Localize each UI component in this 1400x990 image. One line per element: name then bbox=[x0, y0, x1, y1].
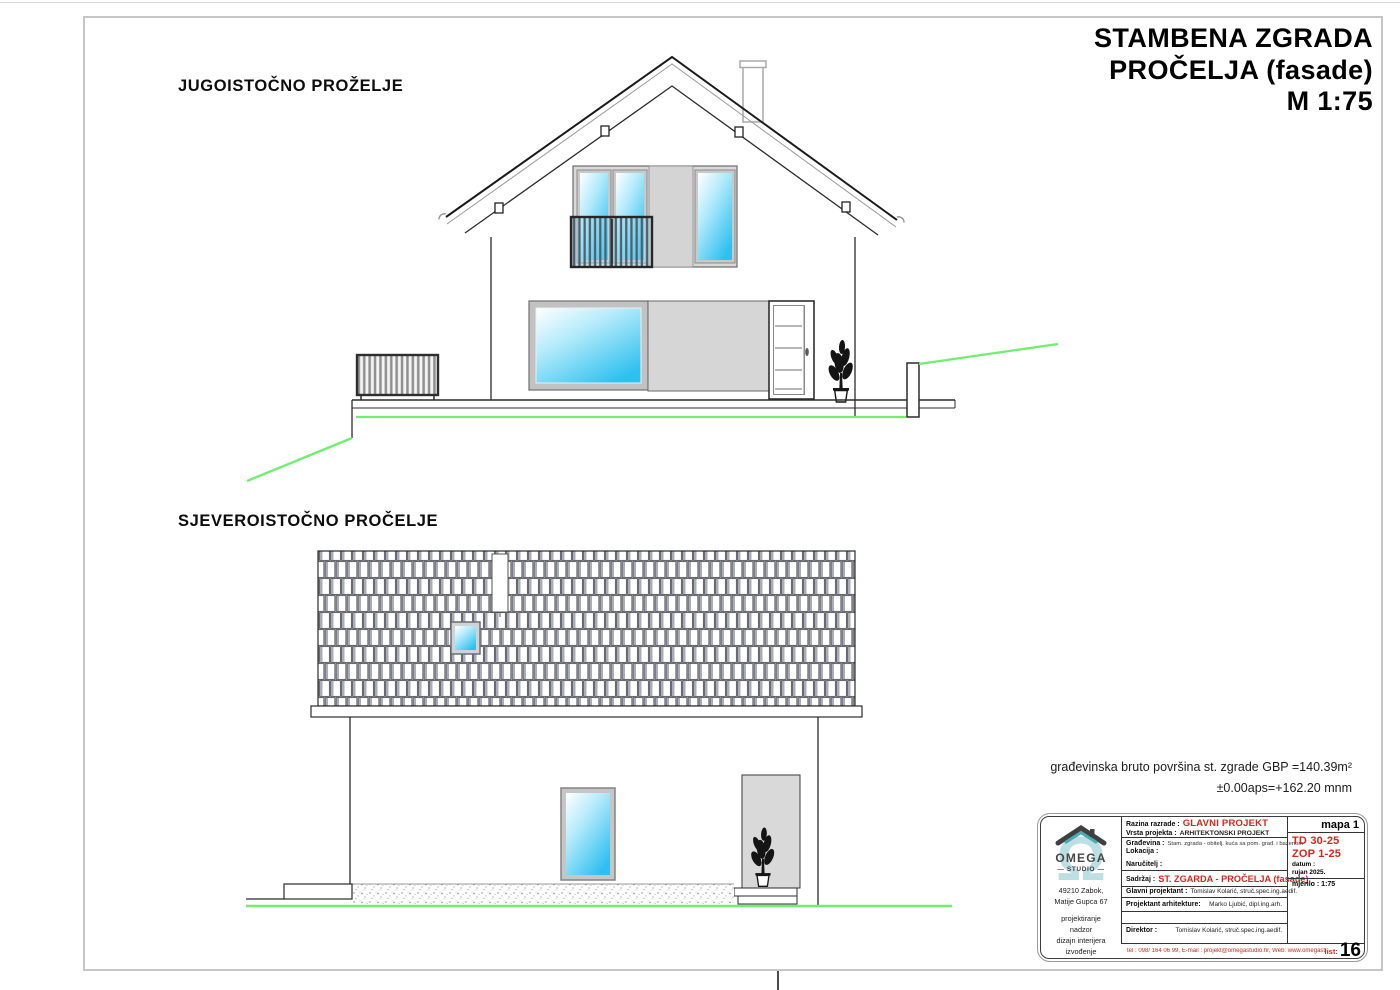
roof-shingles bbox=[318, 551, 855, 706]
sadrzaj-value: ST. ZGARDA - PROČELJA (fasade) bbox=[1158, 874, 1308, 884]
glavni-projektant-label: Glavni projektant : bbox=[1126, 888, 1187, 895]
upper-window-glass-right bbox=[698, 173, 732, 260]
datum-value: rujan 2025. bbox=[1292, 869, 1364, 877]
projektant-arhitekture-value: Marko Ljubić, dipl.ing.arh. bbox=[1209, 901, 1284, 908]
sheet-title: STAMBENA ZGRADA PROČELJA (fasade) M 1:75 bbox=[1094, 23, 1373, 118]
omega-studio-logo: Ω OMEGA — STUDIO — bbox=[1044, 819, 1118, 885]
logo-chimney bbox=[1090, 829, 1095, 837]
mjerilo-value: mjerilo : 1:75 bbox=[1288, 879, 1364, 888]
firm-service-4: izvođenje bbox=[1056, 947, 1105, 958]
mapa-number: mapa 1 bbox=[1288, 817, 1364, 833]
datum-label: datum : bbox=[1292, 861, 1364, 869]
plant-icon bbox=[826, 340, 855, 402]
entry-steps bbox=[734, 888, 797, 904]
gravel-strip bbox=[352, 884, 734, 904]
sheet-title-line3: M 1:75 bbox=[1094, 86, 1373, 118]
ground-floor-window bbox=[561, 788, 615, 880]
gross-area-note: građevinska bruto površina st. zgrade GB… bbox=[1050, 757, 1352, 778]
zop-number: ZOP 1-25 bbox=[1288, 847, 1364, 860]
entry-door bbox=[769, 301, 814, 399]
logo-subtext: — STUDIO — bbox=[1057, 866, 1104, 873]
southeast-elevation-drawing bbox=[230, 45, 1080, 495]
title-block-data-column: Razina razrade : GLAVNI PROJEKT Vrsta pr… bbox=[1121, 817, 1288, 943]
narucitelj-label: Naručitelj : bbox=[1126, 861, 1162, 868]
vrsta-label: Vrsta projekta : bbox=[1126, 830, 1177, 837]
sheet-title-line1: STAMBENA ZGRADA bbox=[1094, 23, 1373, 55]
retaining-wall bbox=[907, 363, 919, 417]
sheet-title-line2: PROČELJA (fasade) bbox=[1094, 55, 1373, 87]
area-notes: građevinska bruto površina st. zgrade GB… bbox=[1050, 757, 1352, 798]
projektant-arhitekture-label: Projektant arhitekture: bbox=[1126, 901, 1201, 908]
left-curb bbox=[246, 884, 352, 899]
title-block: Ω OMEGA — STUDIO — 49210 Zabok, Matije G… bbox=[1037, 813, 1368, 962]
razina-value: GLAVNI PROJEKT bbox=[1183, 818, 1269, 829]
facade-panel bbox=[648, 301, 769, 391]
firm-address-line2: Matije Gupca 67 bbox=[1054, 897, 1107, 908]
sheet-top-rule bbox=[0, 2, 1400, 3]
northeast-elevation-drawing bbox=[230, 540, 1080, 925]
razina-label: Razina razrade : bbox=[1126, 821, 1180, 828]
lokacija-label: Lokacija : bbox=[1126, 848, 1158, 855]
firm-service-1: projektiranje bbox=[1056, 914, 1105, 925]
ground-floor-window bbox=[529, 301, 648, 390]
direktor-label: Direktor : bbox=[1126, 927, 1157, 934]
skylight-window bbox=[451, 622, 480, 654]
firm-service-2: nadzor bbox=[1056, 925, 1105, 936]
drawing-sheet: STAMBENA ZGRADA PROČELJA (fasade) M 1:75… bbox=[0, 0, 1400, 990]
roof-fascia bbox=[311, 706, 862, 717]
title-block-meta-column: mapa 1 TD 30-25 ZOP 1-25 datum : rujan 2… bbox=[1288, 817, 1364, 943]
fold-mark bbox=[777, 971, 779, 990]
elevation-datum-note: ±0.00aps=+162.20 mnm bbox=[1050, 778, 1352, 799]
td-number: TD 30-25 bbox=[1288, 833, 1364, 847]
terrace-slab bbox=[352, 400, 955, 438]
direktor-value: Tomislav Kolarić, struč.spec.ing.aedif. bbox=[1175, 927, 1284, 934]
title-block-firm-column: Ω OMEGA — STUDIO — 49210 Zabok, Matije G… bbox=[1041, 817, 1121, 958]
sheet-list-number: 16 bbox=[1340, 945, 1361, 957]
firm-service-3: dizajn interijera bbox=[1056, 936, 1105, 947]
northeast-elevation-label: SJEVEROISTOČNO PROČELJE bbox=[178, 512, 438, 531]
door-handle bbox=[805, 348, 809, 356]
gradevina-label: Građevina : bbox=[1126, 840, 1165, 847]
sadrzaj-label: Sadržaj : bbox=[1126, 876, 1155, 883]
balcony-railing bbox=[571, 217, 652, 267]
terrace-fence bbox=[357, 355, 438, 400]
firm-address-line1: 49210 Zabok, bbox=[1054, 886, 1107, 897]
glavni-projektant-value: Tomislav Kolarić, struč.spec.ing.aedif. bbox=[1190, 888, 1299, 895]
sheet-list-label: list: bbox=[1325, 947, 1340, 956]
logo-text: OMEGA bbox=[1055, 851, 1106, 865]
roof-chimney-strip bbox=[492, 554, 508, 617]
title-block-contact-row: tel : 098/ 164 06 99, E-mail : projekt@o… bbox=[1121, 943, 1364, 958]
entry-niche bbox=[742, 775, 800, 888]
contact-info: tel : 098/ 164 06 99, E-mail : projekt@o… bbox=[1127, 948, 1325, 954]
vrsta-value: ARHITEKTONSKI PROJEKT bbox=[1180, 830, 1270, 837]
chimney bbox=[740, 61, 766, 122]
